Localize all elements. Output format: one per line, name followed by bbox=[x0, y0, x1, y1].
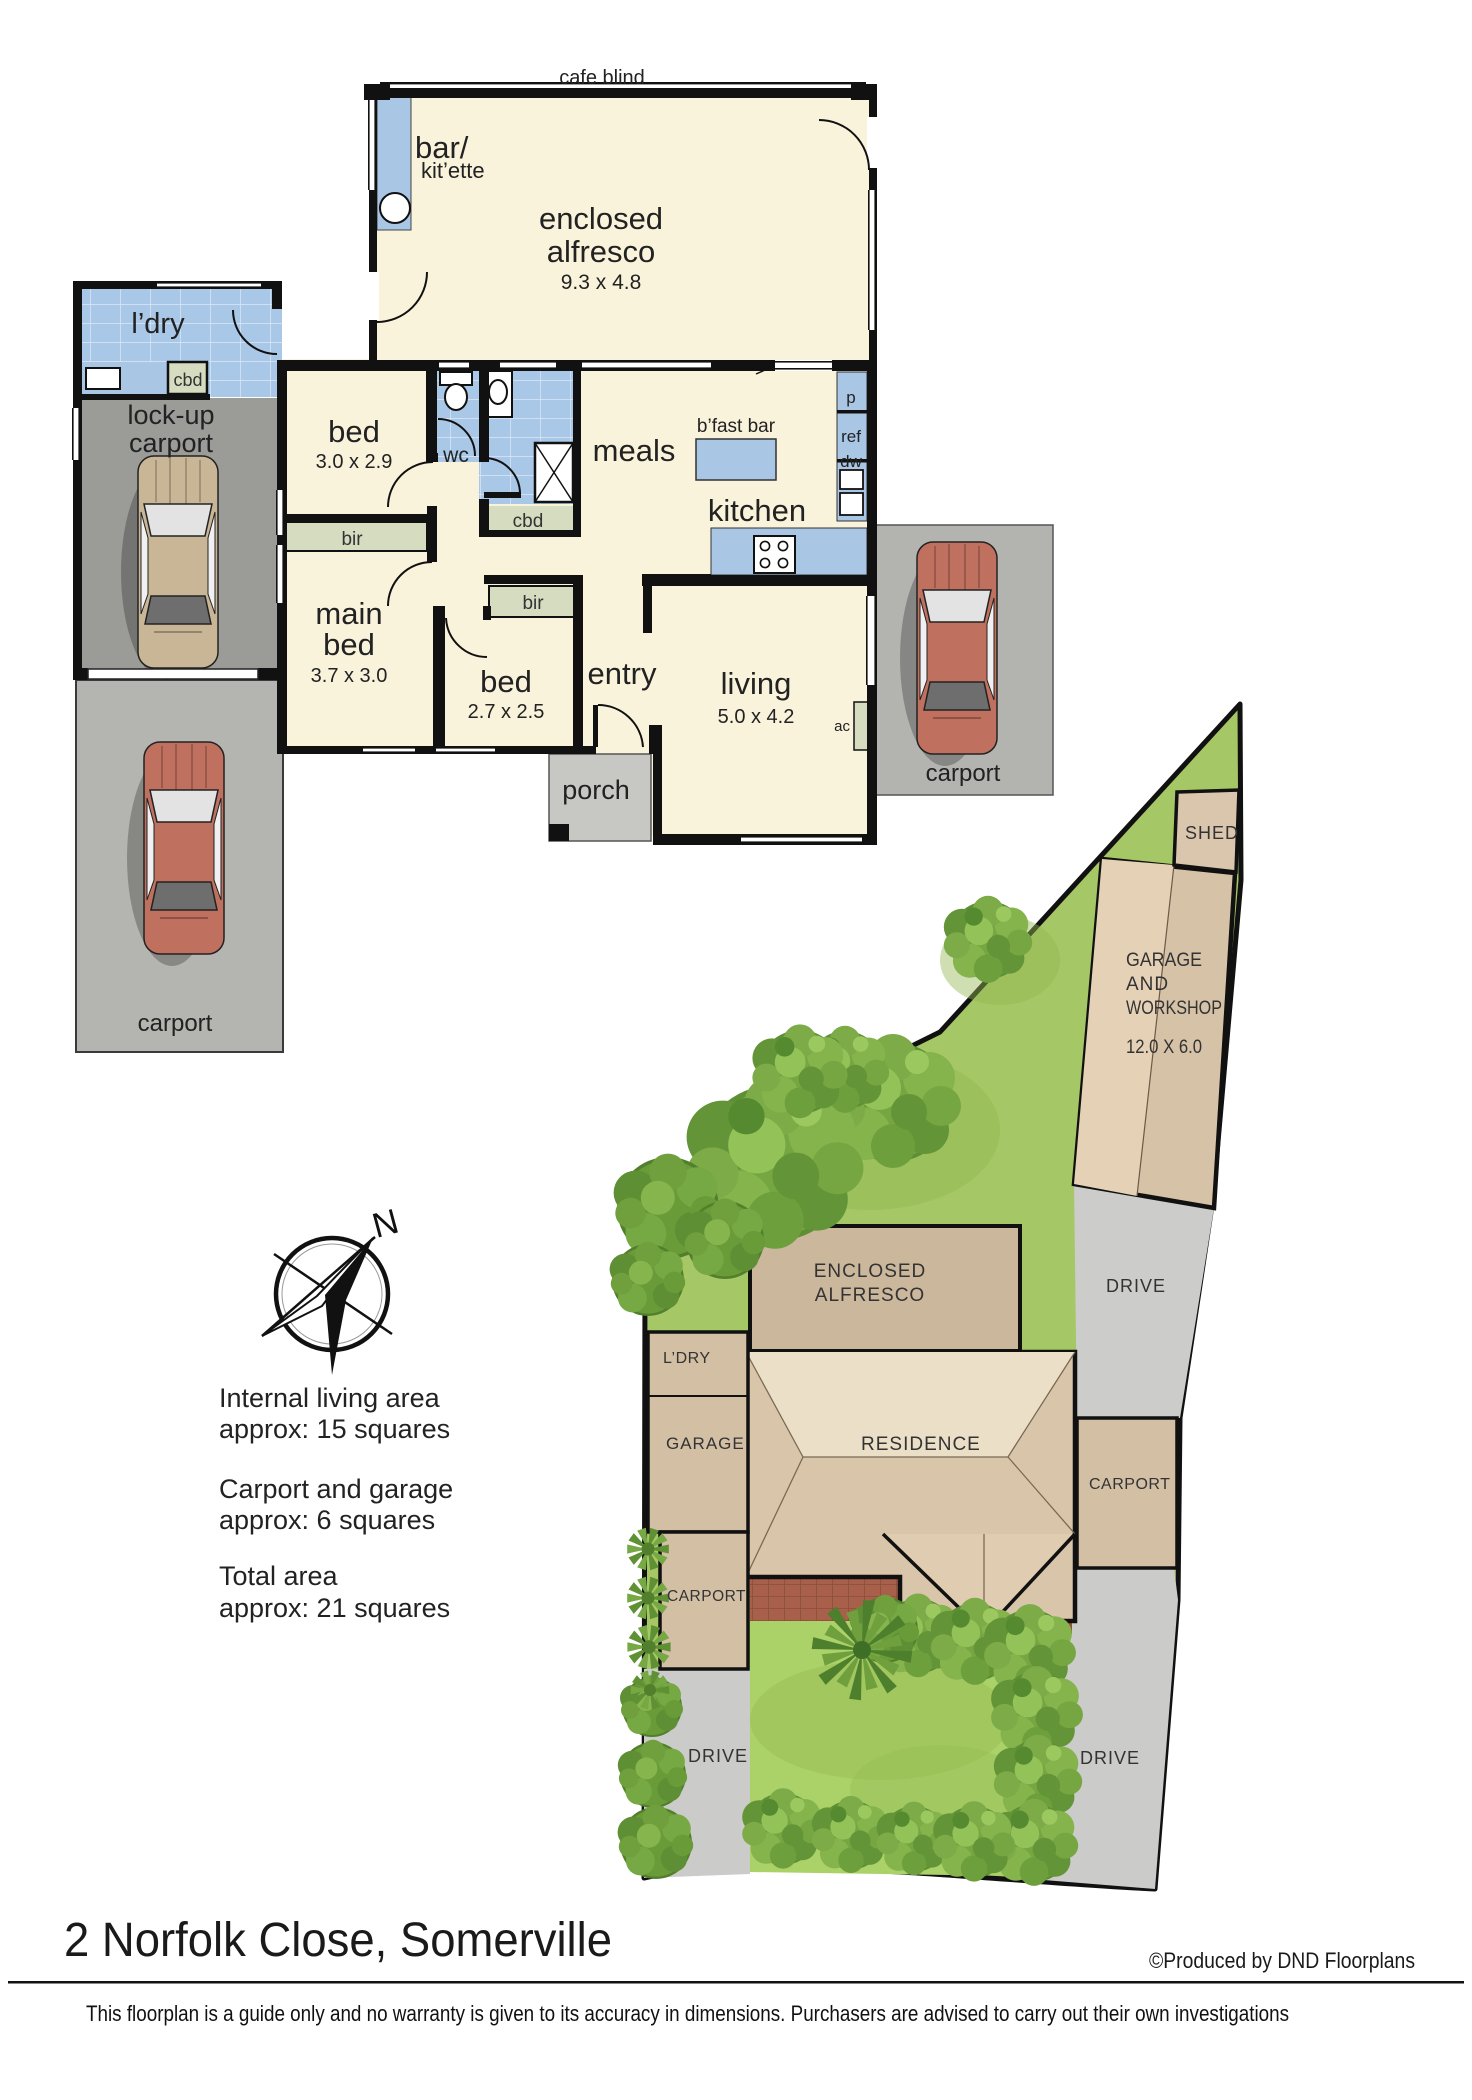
svg-text:Internal living area: Internal living area bbox=[219, 1383, 441, 1413]
svg-text:lock-up: lock-up bbox=[127, 400, 214, 430]
svg-text:CARPORT: CARPORT bbox=[1089, 1476, 1170, 1493]
svg-text:ALFRESCO: ALFRESCO bbox=[815, 1285, 925, 1306]
svg-text:cbd: cbd bbox=[173, 370, 202, 390]
svg-text:carport: carport bbox=[138, 1010, 213, 1037]
svg-text:bed: bed bbox=[328, 414, 380, 449]
svg-text:WORKSHOP: WORKSHOP bbox=[1126, 998, 1222, 1019]
svg-text:approx: 15 squares: approx: 15 squares bbox=[219, 1414, 450, 1444]
svg-text:p: p bbox=[846, 388, 855, 407]
svg-text:Total area: Total area bbox=[219, 1561, 339, 1591]
svg-text:carport: carport bbox=[129, 428, 214, 458]
svg-text:12.0 X 6.0: 12.0 X 6.0 bbox=[1126, 1037, 1202, 1058]
svg-text:cafe blind: cafe blind bbox=[559, 67, 645, 89]
svg-text:RESIDENCE: RESIDENCE bbox=[861, 1434, 981, 1455]
svg-text:porch: porch bbox=[562, 775, 630, 805]
svg-text:wc: wc bbox=[442, 444, 469, 467]
svg-text:main: main bbox=[315, 596, 382, 631]
svg-text:GARAGE: GARAGE bbox=[666, 1434, 745, 1453]
svg-text:living: living bbox=[721, 666, 792, 701]
svg-text:ref: ref bbox=[841, 427, 861, 446]
svg-text:kit’ette: kit’ette bbox=[421, 158, 485, 183]
svg-text:3.0 x 2.9: 3.0 x 2.9 bbox=[316, 451, 393, 473]
svg-text:L’DRY: L’DRY bbox=[663, 1350, 711, 1367]
svg-text:2 Norfolk Close, Somerville: 2 Norfolk Close, Somerville bbox=[64, 1914, 612, 1967]
svg-text:9.3 x 4.8: 9.3 x 4.8 bbox=[561, 271, 642, 294]
svg-text:approx: 21 squares: approx: 21 squares bbox=[219, 1593, 450, 1623]
svg-text:3.7 x 3.0: 3.7 x 3.0 bbox=[311, 665, 388, 687]
svg-text:ac: ac bbox=[834, 718, 850, 735]
svg-text:bed: bed bbox=[480, 664, 532, 699]
svg-text:b’fast bar: b’fast bar bbox=[697, 416, 776, 437]
svg-text:ENCLOSED: ENCLOSED bbox=[814, 1261, 927, 1282]
svg-text:SHED: SHED bbox=[1185, 823, 1239, 843]
svg-text:kitchen: kitchen bbox=[708, 493, 806, 528]
svg-text:bir: bir bbox=[341, 529, 363, 550]
svg-text:GARAGE: GARAGE bbox=[1126, 950, 1202, 971]
svg-text:meals: meals bbox=[593, 433, 676, 468]
svg-text:dw: dw bbox=[840, 452, 862, 471]
svg-text:cbd: cbd bbox=[513, 511, 544, 532]
svg-text:AND: AND bbox=[1126, 974, 1169, 995]
svg-text:Carport and garage: Carport and garage bbox=[219, 1474, 453, 1504]
svg-text:DRIVE: DRIVE bbox=[1080, 1748, 1140, 1768]
svg-text:©Produced by DND Floorplans: ©Produced by DND Floorplans bbox=[1149, 1948, 1415, 1973]
svg-text:carport: carport bbox=[926, 760, 1001, 787]
svg-text:5.0 x 4.2: 5.0 x 4.2 bbox=[718, 706, 795, 728]
svg-text:bir: bir bbox=[522, 593, 544, 614]
svg-text:bed: bed bbox=[323, 627, 375, 662]
svg-text:enclosed: enclosed bbox=[539, 201, 663, 236]
svg-text:CARPORT: CARPORT bbox=[667, 1588, 746, 1605]
svg-text:This floorplan is a guide only: This floorplan is a guide only and no wa… bbox=[86, 2001, 1289, 2026]
svg-text:DRIVE: DRIVE bbox=[1106, 1276, 1166, 1296]
svg-text:approx: 6 squares: approx: 6 squares bbox=[219, 1505, 435, 1535]
svg-text:l’dry: l’dry bbox=[131, 308, 185, 340]
svg-text:entry: entry bbox=[588, 656, 657, 691]
svg-text:alfresco: alfresco bbox=[547, 234, 656, 269]
svg-text:2.7 x 2.5: 2.7 x 2.5 bbox=[468, 701, 545, 723]
svg-text:DRIVE: DRIVE bbox=[688, 1746, 748, 1766]
